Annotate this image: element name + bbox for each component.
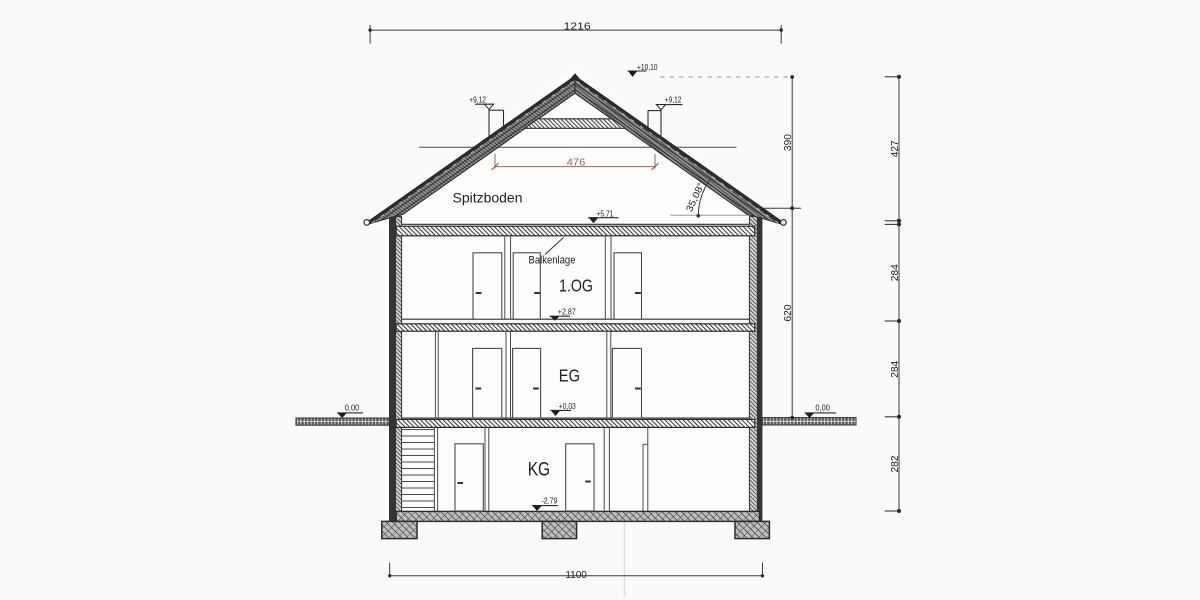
svg-text:620: 620 <box>783 304 794 322</box>
svg-text:1.OG: 1.OG <box>559 276 593 296</box>
svg-text:476: 476 <box>567 157 586 168</box>
svg-text:1100: 1100 <box>565 570 587 581</box>
svg-text:Spitzboden: Spitzboden <box>453 191 523 206</box>
svg-text:427: 427 <box>890 140 901 157</box>
svg-text:+5,71: +5,71 <box>597 209 614 218</box>
svg-text:-2,79: -2,79 <box>542 496 558 505</box>
svg-text:+9,12: +9,12 <box>665 95 682 104</box>
svg-text:KG: KG <box>528 459 550 480</box>
svg-text:390: 390 <box>783 133 794 151</box>
svg-text:284: 284 <box>890 360 901 378</box>
svg-text:0,00: 0,00 <box>815 404 830 413</box>
svg-text:1216: 1216 <box>564 21 591 32</box>
svg-text:+10,10: +10,10 <box>637 63 658 72</box>
svg-text:282: 282 <box>890 456 901 473</box>
svg-text:+2,87: +2,87 <box>558 308 576 317</box>
svg-text:284: 284 <box>890 264 901 282</box>
svg-text:+9,12: +9,12 <box>469 95 486 104</box>
svg-text:EG: EG <box>559 366 580 386</box>
svg-text:Balkenlage: Balkenlage <box>529 255 576 267</box>
svg-text:+0,03: +0,03 <box>559 402 576 411</box>
svg-text:0,00: 0,00 <box>345 403 360 412</box>
